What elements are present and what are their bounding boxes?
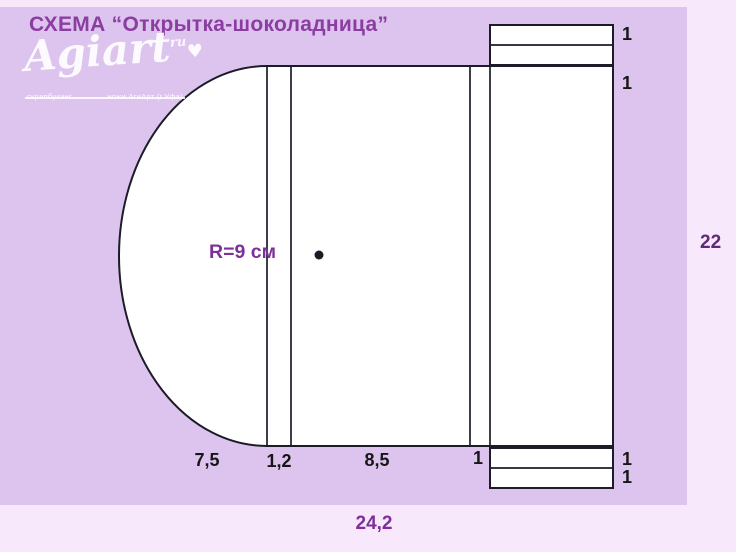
- dim-fold-strip: 1,2: [266, 452, 291, 470]
- dim-side-strip: 1: [473, 449, 483, 467]
- logo-domain-suffix: ru: [170, 35, 187, 51]
- dim-total-width: 24,2: [356, 514, 393, 533]
- dim-top-tab-outer: 1: [622, 25, 632, 43]
- dim-semicircle-width: 7,5: [194, 451, 219, 469]
- agiart-logo: Agiartru♥ скрапбукинг ножи АгиАрт (г.Уфа…: [24, 36, 204, 78]
- logo-brand-text: Agiart: [22, 22, 172, 81]
- dim-bottom-tab-outer: 1: [622, 450, 632, 468]
- dim-total-height: 22: [700, 233, 721, 252]
- logo-wordmark: Agiartru♥: [23, 23, 205, 77]
- heart-icon: ♥: [186, 41, 204, 63]
- page-background: СХЕМА “Открытка-шоколадница” Agiartru♥ с…: [0, 0, 736, 552]
- circle-center-dot: [315, 251, 324, 260]
- dim-top-tab-inner: 1: [622, 74, 632, 92]
- logo-tagline-right: ножи АгиАрт (г.Уфа): [107, 92, 183, 101]
- logo-tagline-left: скрапбукинг: [27, 92, 72, 101]
- radius-label: R=9 см: [209, 243, 276, 263]
- dim-front-panel: 8,5: [364, 451, 389, 469]
- logo-tagline: скрапбукинг ножи АгиАрт (г.Уфа): [27, 92, 183, 101]
- dim-bottom-tab-inner: 1: [622, 468, 632, 486]
- card-outline: [119, 66, 613, 446]
